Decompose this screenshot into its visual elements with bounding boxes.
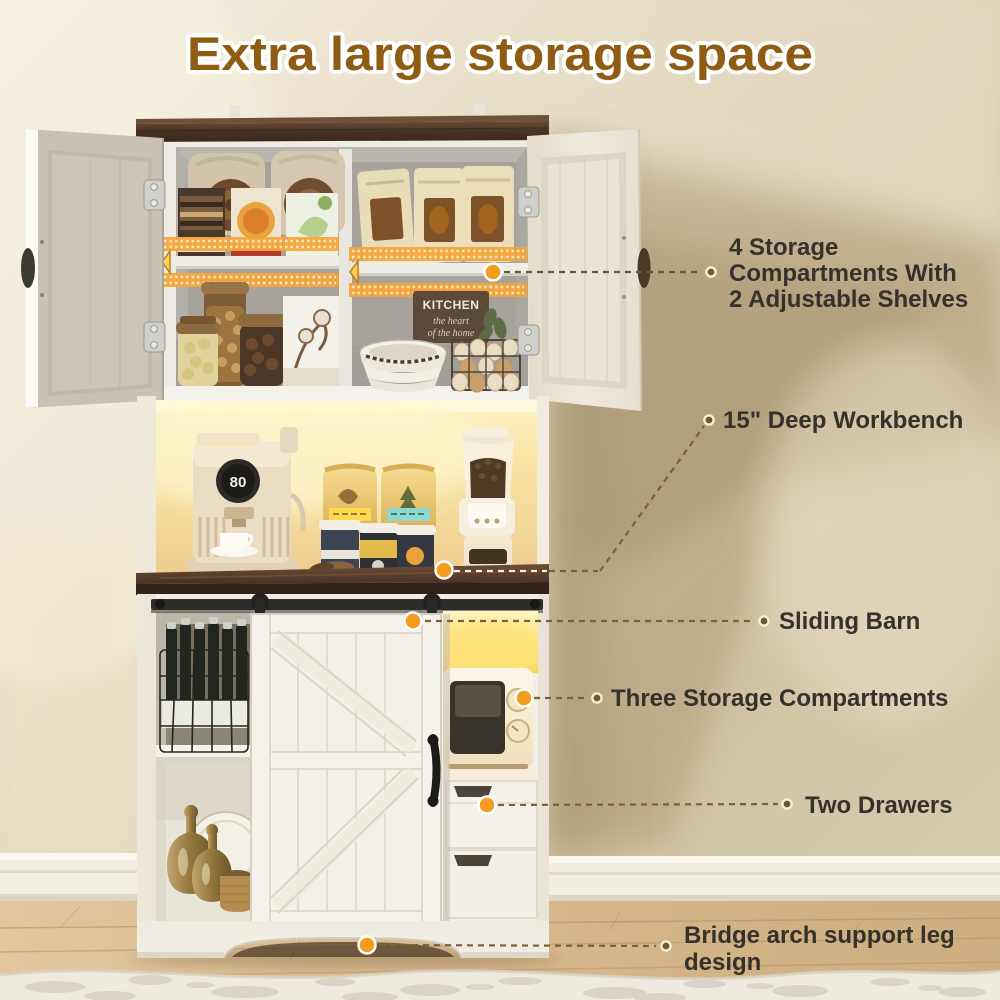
svg-text:Three Storage Compartments: Three Storage Compartments <box>611 685 948 712</box>
svg-text:Sliding Barn: Sliding Barn <box>779 608 920 635</box>
svg-text:design: design <box>684 949 761 976</box>
svg-text:Bridge arch support leg: Bridge arch support leg <box>684 922 955 949</box>
svg-text:80: 80 <box>230 474 247 491</box>
svg-text:Compartments With: Compartments With <box>729 260 957 287</box>
svg-text:Extra large storage space: Extra large storage space <box>187 27 813 80</box>
svg-text:the heart: the heart <box>433 316 469 327</box>
svg-text:of the home: of the home <box>428 328 475 339</box>
svg-text:Two Drawers: Two Drawers <box>805 792 953 819</box>
svg-text:4 Storage: 4 Storage <box>729 234 838 261</box>
svg-text:2 Adjustable Shelves: 2 Adjustable Shelves <box>729 286 968 313</box>
svg-text:15" Deep Workbench: 15" Deep Workbench <box>723 407 963 434</box>
svg-text:KITCHEN: KITCHEN <box>423 298 480 312</box>
